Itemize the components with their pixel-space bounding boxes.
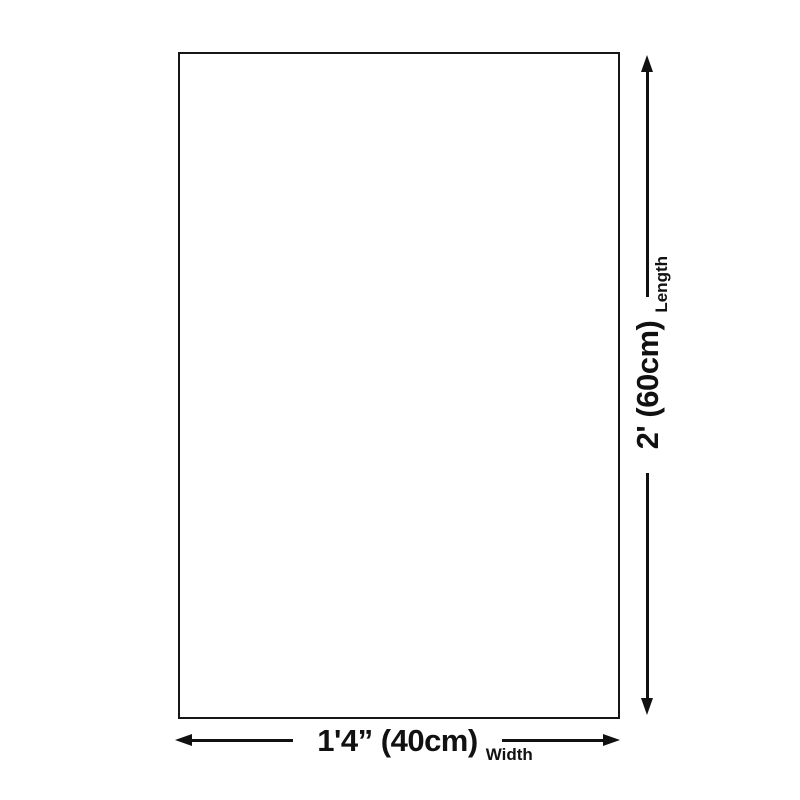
arrow-left-icon	[175, 734, 192, 746]
length-dimension-line-lower	[646, 473, 649, 698]
product-rectangle	[178, 52, 620, 719]
width-dimension-line-right: Width	[502, 739, 603, 742]
width-dimension-line-left	[192, 739, 293, 742]
length-dimension-line-upper: Length	[646, 72, 649, 297]
width-value: 1'4” (40cm)	[317, 725, 477, 756]
dimension-diagram: 1'4” (40cm) Width 2' (60cm) Length	[0, 0, 800, 800]
arrow-up-icon	[641, 55, 653, 72]
arrow-right-icon	[603, 734, 620, 746]
arrow-down-icon	[641, 698, 653, 715]
length-dimension: 2' (60cm) Length	[625, 55, 669, 715]
length-value: 2' (60cm)	[632, 321, 663, 450]
length-axis-label: Length	[653, 256, 670, 313]
width-axis-label: Width	[486, 746, 533, 763]
width-dimension: 1'4” (40cm) Width	[175, 718, 620, 762]
